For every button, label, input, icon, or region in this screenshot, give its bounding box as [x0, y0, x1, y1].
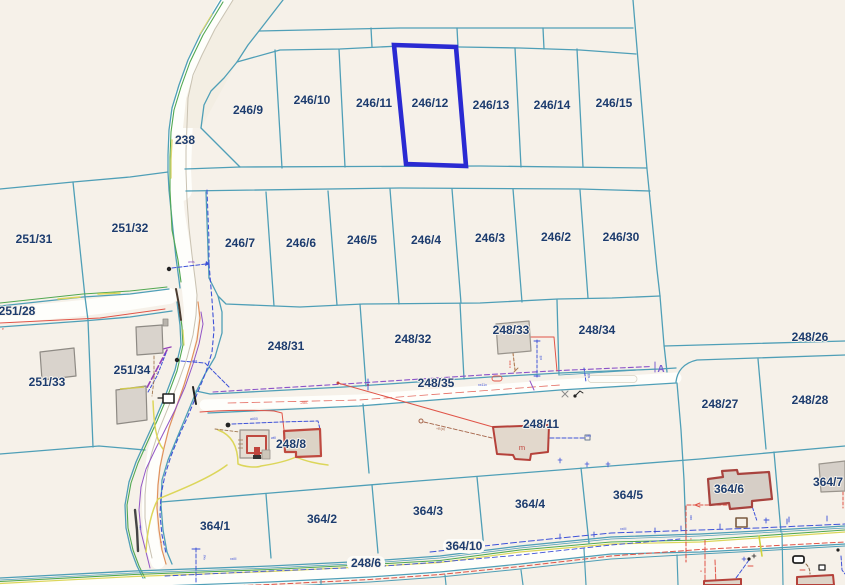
svg-text:+R(a): +R(a) [436, 427, 445, 431]
svg-text:246/7: 246/7 [225, 236, 255, 250]
svg-text:will: will [586, 434, 591, 438]
svg-text:x xxx: x xxx [508, 360, 512, 368]
svg-text:364/10: 364/10 [446, 539, 483, 553]
svg-text:a#00: a#00 [250, 417, 258, 421]
svg-text:A: A [657, 364, 664, 375]
svg-text:246/10: 246/10 [294, 93, 331, 107]
svg-text:-280-: -280- [300, 401, 309, 405]
svg-text:246/12: 246/12 [412, 96, 449, 110]
svg-text:xxx: xxx [192, 359, 198, 363]
svg-text:248/32: 248/32 [395, 332, 432, 346]
svg-text:246/2: 246/2 [541, 230, 571, 244]
svg-text:364/7: 364/7 [813, 475, 843, 489]
svg-text:xx11x: xx11x [478, 383, 487, 387]
svg-text:364/1: 364/1 [200, 519, 230, 533]
svg-text:251/31: 251/31 [16, 232, 53, 246]
svg-text:x: x [690, 537, 692, 541]
svg-text:xIII: xIII [587, 374, 591, 378]
svg-text:248/11: 248/11 [523, 417, 559, 431]
svg-text:248/33: 248/33 [493, 323, 530, 337]
svg-text:248/28: 248/28 [792, 393, 829, 407]
svg-text:248/34: 248/34 [579, 323, 616, 337]
svg-text:251/32: 251/32 [112, 221, 149, 235]
svg-text:246/11: 246/11 [356, 96, 392, 110]
svg-text:364/5: 364/5 [613, 488, 643, 502]
svg-text:xxIII: xxIII [620, 527, 626, 531]
svg-text:364/2: 364/2 [307, 512, 337, 526]
svg-text:xxx: xxx [689, 515, 693, 520]
svg-text:246/30: 246/30 [603, 230, 640, 244]
svg-text:248/6: 248/6 [351, 556, 381, 570]
svg-text:248/8: 248/8 [276, 437, 306, 451]
svg-text:248/31: 248/31 [268, 339, 305, 353]
svg-text:246/5: 246/5 [347, 233, 377, 247]
svg-text:246/14: 246/14 [534, 98, 571, 112]
svg-text:246/6: 246/6 [286, 236, 316, 250]
svg-text:364/6: 364/6 [714, 482, 744, 496]
svg-text:248/35: 248/35 [418, 376, 455, 390]
svg-text:m: m [519, 443, 525, 452]
svg-text:248/27: 248/27 [702, 397, 739, 411]
svg-text:2: 2 [156, 371, 158, 375]
svg-text:251/33: 251/33 [29, 375, 66, 389]
svg-text:364/4: 364/4 [515, 497, 545, 511]
svg-text:xIII: xIII [539, 356, 543, 360]
svg-text:238: 238 [175, 133, 195, 147]
svg-text:246/15: 246/15 [596, 96, 633, 110]
svg-text:246/9: 246/9 [233, 103, 263, 117]
svg-text:246/3: 246/3 [475, 231, 505, 245]
svg-text:248/26: 248/26 [792, 330, 829, 344]
svg-text:xIII: xIII [138, 525, 142, 530]
svg-text:251/28: 251/28 [0, 304, 36, 318]
svg-text:251/34: 251/34 [114, 363, 151, 377]
svg-text:xxIII: xxIII [230, 557, 236, 561]
svg-text:364/3: 364/3 [413, 504, 443, 518]
svg-text:246/13: 246/13 [473, 98, 510, 112]
svg-text:ants: ants [188, 260, 195, 264]
svg-text:e: e [2, 327, 4, 331]
svg-text:246/4: 246/4 [411, 233, 441, 247]
